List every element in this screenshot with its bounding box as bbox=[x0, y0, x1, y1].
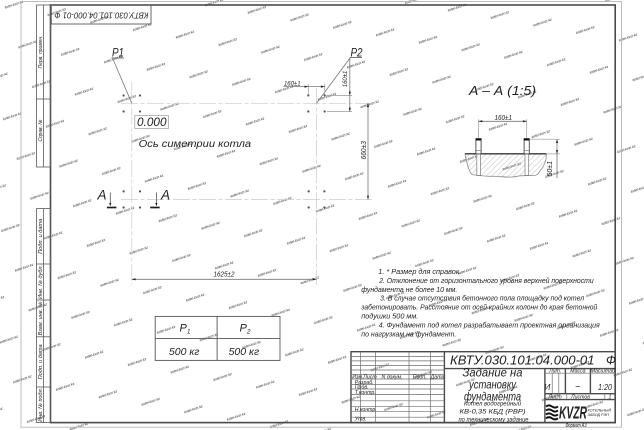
svg-text:Лит.: Лит. bbox=[548, 368, 561, 374]
svg-text:1. * Размер для справок.: 1. * Размер для справок. bbox=[378, 267, 461, 276]
svg-text:500 кг: 500 кг bbox=[169, 346, 200, 358]
svg-text:1:20: 1:20 bbox=[598, 382, 612, 392]
svg-text:3. В случае отсутствия бетонно: 3. В случае отсутствия бетонного пола пл… bbox=[380, 294, 584, 303]
svg-text:Подп. и дата: Подп. и дата bbox=[38, 219, 44, 254]
svg-text:P1: P1 bbox=[112, 46, 124, 60]
svg-text:Подп. и дата: Подп. и дата bbox=[38, 344, 44, 379]
svg-text:A: A bbox=[160, 188, 170, 203]
svg-text:Формат А3: Формат А3 bbox=[566, 423, 587, 429]
svg-text:Котел водогрейный: Котел водогрейный bbox=[464, 401, 522, 408]
svg-text:Подп.: Подп. bbox=[413, 374, 427, 380]
svg-text:И: И bbox=[544, 382, 551, 392]
svg-text:Справ. №: Справ. № bbox=[38, 119, 44, 141]
svg-text:Инв. № подл.: Инв. № подл. bbox=[38, 388, 44, 422]
svg-text:Инв. № дубл.: Инв. № дубл. bbox=[38, 265, 44, 299]
svg-text:Листов: Листов bbox=[570, 395, 590, 401]
svg-text:фундамента не более 10 мм.: фундамента не более 10 мм. bbox=[361, 285, 457, 294]
svg-text:Ф: Ф bbox=[606, 354, 616, 368]
svg-text:Взам. инв. №: Взам. инв. № bbox=[38, 301, 44, 335]
svg-text:Н.контр.: Н.контр. bbox=[355, 407, 377, 413]
svg-text:подушки 500 мм.: подушки 500 мм. bbox=[361, 312, 418, 321]
svg-text:КВТУ.030.101.04.000-01 Ф: КВТУ.030.101.04.000-01 Ф bbox=[54, 10, 148, 20]
svg-text:50±1: 50±1 bbox=[547, 161, 554, 177]
svg-text:Перв. примен.: Перв. примен. bbox=[38, 36, 44, 69]
svg-text:–: – bbox=[575, 382, 581, 391]
svg-text:N докум.: N докум. bbox=[382, 374, 403, 380]
svg-text:по техническому задание: по техническому задание bbox=[459, 417, 530, 423]
svg-text:по нагрузкам на фундамент.: по нагрузкам на фундамент. bbox=[361, 329, 456, 338]
svg-text:А – А (1:5): А – А (1:5) bbox=[468, 83, 536, 98]
svg-text:0.000: 0.000 bbox=[137, 117, 167, 129]
svg-text:A: A bbox=[97, 188, 107, 203]
svg-text:Дата: Дата bbox=[430, 374, 445, 380]
svg-text:160±1: 160±1 bbox=[495, 115, 513, 122]
svg-text:KVZR: KVZR bbox=[559, 404, 587, 424]
svg-text:660±3: 660±3 bbox=[361, 141, 368, 160]
svg-text:2. Отклонение от горизонтально: 2. Отклонение от горизонтального уровня … bbox=[378, 276, 593, 285]
svg-text:ЗАВОД РЭП: ЗАВОД РЭП bbox=[588, 412, 610, 417]
svg-text:Ось симетрии котла: Ось симетрии котла bbox=[139, 138, 252, 150]
svg-text:160±1: 160±1 bbox=[284, 80, 301, 87]
svg-text:160±1: 160±1 bbox=[342, 70, 349, 87]
svg-text:Лист: Лист bbox=[547, 395, 562, 401]
svg-text:Утв.: Утв. bbox=[355, 417, 367, 423]
svg-text:Масса: Масса bbox=[570, 368, 585, 374]
svg-text:1625±2: 1625±2 bbox=[214, 271, 235, 278]
svg-text:4. Фундамент под котел разраба: 4. Фундамент под котел разрабатывает про… bbox=[379, 320, 600, 329]
svg-text:Масштаб: Масштаб bbox=[591, 368, 616, 374]
svg-text:500 кг: 500 кг bbox=[229, 346, 260, 358]
svg-text:КВ-0,35 КБД (РВР): КВ-0,35 КБД (РВР) bbox=[460, 410, 526, 416]
svg-text:1: 1 bbox=[609, 395, 612, 401]
svg-text:Т.контр.: Т.контр. bbox=[355, 390, 376, 396]
svg-text:забетонировать. Расстояние от: забетонировать. Расстояние от осей крайн… bbox=[360, 303, 597, 312]
